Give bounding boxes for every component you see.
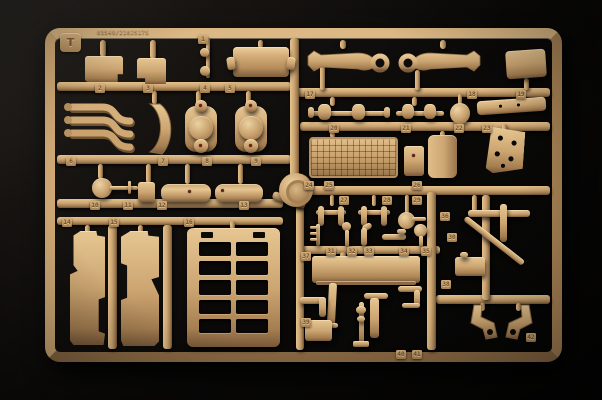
part-z-bracket — [402, 303, 420, 308]
part-number-tag: 28 — [382, 196, 392, 205]
part-number-tag: 15 — [109, 218, 119, 227]
part-axle-wheel — [402, 104, 414, 119]
part-number-tag: 10 — [90, 201, 100, 210]
part-bracket-plate — [404, 146, 424, 176]
part-axle-wheel — [352, 104, 365, 120]
sprue-runner — [427, 192, 436, 350]
gate-stub — [100, 40, 106, 57]
sprue-runner — [296, 205, 304, 350]
part-transfer-case — [185, 106, 217, 152]
part-number-tag: 22 — [454, 124, 464, 133]
sprue-runner — [57, 82, 291, 91]
gate-stub — [372, 195, 376, 206]
injection-hub — [279, 173, 313, 207]
part-suspension-arm — [306, 46, 390, 80]
sprue-runner — [57, 217, 283, 225]
sprue-photo: T 03549/210J517S — [0, 0, 602, 400]
frame-slot — [201, 232, 213, 238]
part-number-tag: 6 — [66, 157, 76, 166]
part-block — [138, 182, 155, 202]
sprue-letter: T — [60, 33, 81, 52]
case-boss — [194, 139, 208, 153]
gate-stub — [185, 164, 190, 184]
part-number-tag: 42 — [526, 333, 536, 342]
part-lollipop-stick — [412, 217, 426, 221]
gate-stub — [412, 97, 417, 106]
part-bench-top — [312, 256, 420, 283]
part-number-tag: 37 — [301, 252, 311, 261]
part-number-tag: 8 — [202, 157, 212, 166]
part-crank-pin — [128, 181, 131, 194]
part-number-tag: 25 — [324, 181, 334, 190]
part-number-tag: 20 — [329, 124, 339, 133]
gate-stub — [238, 164, 243, 184]
part-support-bracket — [466, 303, 500, 343]
gate-stub — [146, 164, 151, 183]
part-knob-stem — [345, 230, 349, 247]
part-number-tag: 18 — [467, 90, 477, 99]
part-number-tag: 36 — [440, 212, 450, 221]
part-lever-tooth — [310, 226, 317, 229]
part-number-tag: 19 — [516, 90, 526, 99]
part-grid-frame — [187, 228, 280, 347]
part-small-box — [455, 257, 485, 276]
part-number-tag: 14 — [62, 218, 72, 227]
part-small-knob — [200, 66, 210, 76]
part-ball-stem — [419, 236, 423, 247]
part-number-tag: 7 — [158, 157, 168, 166]
frame-slot — [253, 232, 265, 238]
gate-stub — [150, 40, 156, 59]
part-number-tag: 21 — [401, 124, 411, 133]
part-axle-cap — [308, 107, 314, 118]
part-number-tag: 39 — [301, 318, 311, 327]
part-number-tag: 35 — [421, 247, 431, 256]
part-number-tag: 2 — [95, 84, 105, 93]
part-bent-lever — [361, 228, 367, 246]
part-box-flap — [226, 57, 236, 71]
part-number-tag: 1 — [198, 35, 208, 44]
part-frame-bar — [500, 204, 507, 242]
sprue-runner — [300, 186, 550, 195]
part-small-plate — [505, 49, 547, 80]
part-angled-bracket — [485, 127, 525, 175]
sprue-runner — [108, 225, 117, 349]
part-number-tag: 11 — [123, 201, 133, 210]
part-number-tag: 5 — [225, 84, 235, 93]
part-elbow-pipe — [319, 297, 326, 317]
part-number-tag: 3 — [143, 84, 153, 93]
part-suspension-arm — [398, 46, 482, 80]
part-scope-sight — [397, 229, 406, 234]
part-scope — [382, 234, 406, 240]
part-number-tag: 12 — [157, 201, 167, 210]
part-small-knob — [200, 48, 209, 57]
gate-stub — [330, 195, 334, 206]
frame-openings — [199, 242, 268, 333]
part-fender-blade — [142, 102, 174, 156]
gate-stub — [98, 164, 103, 179]
part-number-tag: 13 — [239, 201, 249, 210]
part-bench-post — [370, 298, 379, 338]
case-boss — [189, 116, 213, 140]
part-small-box-tab — [460, 252, 468, 258]
part-number-tag: 26 — [412, 181, 422, 190]
part-axle-wheel — [424, 104, 436, 119]
part-number-tag: 41 — [412, 350, 422, 359]
part-number-tag: 27 — [339, 196, 349, 205]
part-number-tag: 40 — [396, 350, 406, 359]
part-number-tag: 17 — [305, 90, 315, 99]
part-finial-base — [353, 341, 369, 347]
part-frame-bar — [468, 210, 530, 217]
part-curved-strips — [60, 98, 140, 156]
part-number-tag: 16 — [184, 218, 194, 227]
mold-code-text: 03549/210J517S — [97, 29, 149, 38]
case-boss — [245, 100, 257, 112]
part-finial-knob — [357, 316, 365, 322]
part-flat-panel — [85, 56, 123, 82]
part-number-tag: 33 — [364, 247, 374, 256]
gate-stub — [330, 97, 335, 106]
case-boss — [244, 139, 258, 153]
case-boss — [239, 116, 263, 140]
part-radiator-grille — [309, 137, 398, 178]
part-number-tag: 38 — [441, 280, 451, 289]
part-cylinder — [161, 184, 211, 202]
part-crank-disc — [92, 178, 112, 198]
part-number-tag: 32 — [347, 247, 357, 256]
gate-stub — [405, 195, 409, 213]
part-number-tag: 30 — [447, 233, 457, 242]
part-axle-wheel — [318, 104, 331, 120]
part-lever-tooth — [310, 238, 317, 241]
part-number-tag: 24 — [304, 181, 314, 190]
part-number-tag: 9 — [251, 157, 261, 166]
gate-stub — [524, 78, 529, 90]
part-cylinder — [215, 184, 263, 202]
part-rounded-box — [428, 135, 457, 178]
part-number-tag: 4 — [200, 84, 210, 93]
part-number-tag: 29 — [412, 196, 422, 205]
part-box-housing — [233, 47, 289, 77]
sprue-runner — [163, 225, 172, 349]
part-crank-rod — [110, 186, 138, 190]
part-number-tag: 34 — [399, 247, 409, 256]
sprue-runner — [291, 88, 550, 97]
part-lever-tooth — [310, 232, 317, 235]
case-boss — [195, 100, 207, 112]
part-number-tag: 23 — [482, 124, 492, 133]
part-ball-mount — [450, 103, 470, 124]
part-number-tag: 31 — [326, 247, 336, 256]
part-axle-cap — [384, 107, 390, 118]
part-transfer-case — [235, 106, 267, 152]
part-finial-knob — [356, 306, 366, 314]
